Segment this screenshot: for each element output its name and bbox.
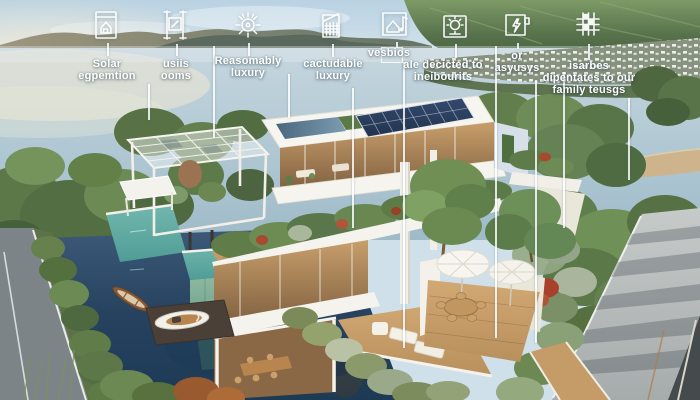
plant xyxy=(309,173,315,179)
column xyxy=(400,162,409,304)
leader-line xyxy=(628,98,630,180)
sun-photo-icon xyxy=(439,12,471,47)
leader-line xyxy=(352,88,354,228)
callout-label-3: Reasomablyluxury xyxy=(215,55,282,79)
pergola-tree xyxy=(178,160,202,188)
leader-line xyxy=(148,84,150,120)
leader-line xyxy=(535,80,537,343)
building-facade-icon xyxy=(315,9,347,46)
garden-tree xyxy=(402,159,495,265)
red-shrub xyxy=(256,235,268,245)
leader-line xyxy=(403,62,405,348)
annotated-villa-render: Solaregpemtion usiisooms Reasomablyluxur… xyxy=(0,0,700,400)
callout-label-1: Solaregpemtion xyxy=(78,58,135,82)
callout-label-7: orasyusys xyxy=(495,50,540,74)
callout-label-6: ale decicted toineibourits xyxy=(403,59,482,83)
callout-label-2: usiisooms xyxy=(161,58,191,82)
red-shrub xyxy=(336,219,348,229)
armchair xyxy=(372,322,388,335)
patio xyxy=(420,250,545,362)
window-frame-icon xyxy=(159,8,191,47)
blueprint-house-icon xyxy=(90,9,122,46)
grid-blocks-icon xyxy=(572,9,604,44)
red-shrub xyxy=(391,207,401,215)
leader-line xyxy=(288,74,290,118)
callout-label-4: cactudableluxury xyxy=(303,58,362,82)
callout-label-8: isarbesdipentates to ourfamily teusgs xyxy=(543,60,636,96)
boat-seat xyxy=(172,316,182,323)
plant xyxy=(285,176,293,184)
lightning-frame-icon xyxy=(501,9,533,46)
house-music-note-icon xyxy=(379,9,413,44)
gear-sun-icon xyxy=(232,9,264,46)
leader-line xyxy=(588,44,590,60)
callout-label-5: vesbios xyxy=(368,47,410,59)
red-shrub xyxy=(539,153,551,162)
leader-line xyxy=(495,46,497,338)
